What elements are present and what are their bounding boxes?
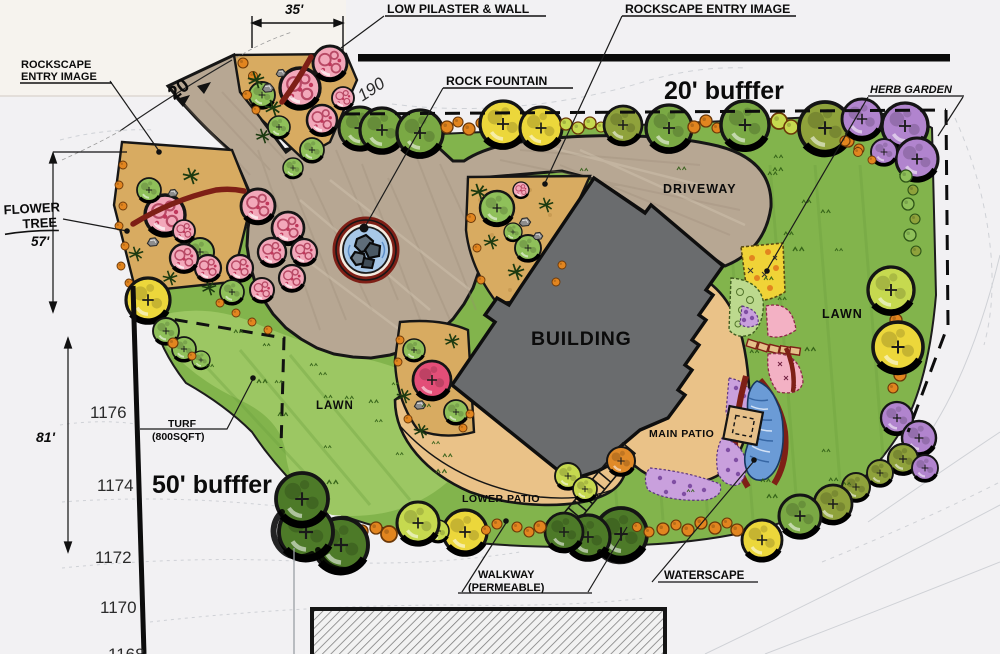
svg-text:50' bufffer: 50' bufffer	[152, 471, 272, 499]
svg-text:LAWN: LAWN	[316, 400, 354, 412]
svg-text:ROCKSCAPE ENTRY IMAGE: ROCKSCAPE ENTRY IMAGE	[625, 2, 790, 16]
svg-text:81': 81'	[36, 429, 56, 445]
svg-text:35': 35'	[285, 2, 304, 17]
svg-text:MAIN PATIO: MAIN PATIO	[649, 428, 714, 440]
svg-text:1174: 1174	[97, 476, 134, 495]
svg-text:DRIVEWAY: DRIVEWAY	[663, 182, 737, 196]
svg-text:20' bufffer: 20' bufffer	[664, 77, 784, 105]
svg-text:ROCKSCAPE: ROCKSCAPE	[21, 59, 91, 71]
svg-text:BUILDING: BUILDING	[531, 328, 632, 350]
svg-text:ROCK FOUNTAIN: ROCK FOUNTAIN	[446, 74, 547, 88]
svg-text:(PERMEABLE): (PERMEABLE)	[468, 582, 545, 594]
svg-text:WATERSCAPE: WATERSCAPE	[664, 570, 745, 582]
svg-text:LAWN: LAWN	[822, 307, 863, 321]
svg-text:ENTRY IMAGE: ENTRY IMAGE	[21, 71, 97, 83]
svg-text:TREE: TREE	[22, 215, 58, 232]
svg-text:(800SQFT): (800SQFT)	[152, 431, 205, 443]
svg-text:HERB GARDEN: HERB GARDEN	[870, 84, 953, 96]
svg-text:1170: 1170	[100, 598, 137, 617]
svg-text:1168: 1168	[108, 645, 145, 654]
svg-text:WALKWAY: WALKWAY	[478, 569, 535, 581]
svg-text:TURF: TURF	[168, 418, 197, 430]
svg-text:LOWER PATIO: LOWER PATIO	[462, 493, 540, 505]
svg-text:1172: 1172	[95, 548, 132, 567]
svg-text:LOW PILASTER & WALL: LOW PILASTER & WALL	[387, 2, 530, 16]
svg-text:57': 57'	[31, 234, 50, 249]
svg-text:1176: 1176	[90, 403, 127, 422]
